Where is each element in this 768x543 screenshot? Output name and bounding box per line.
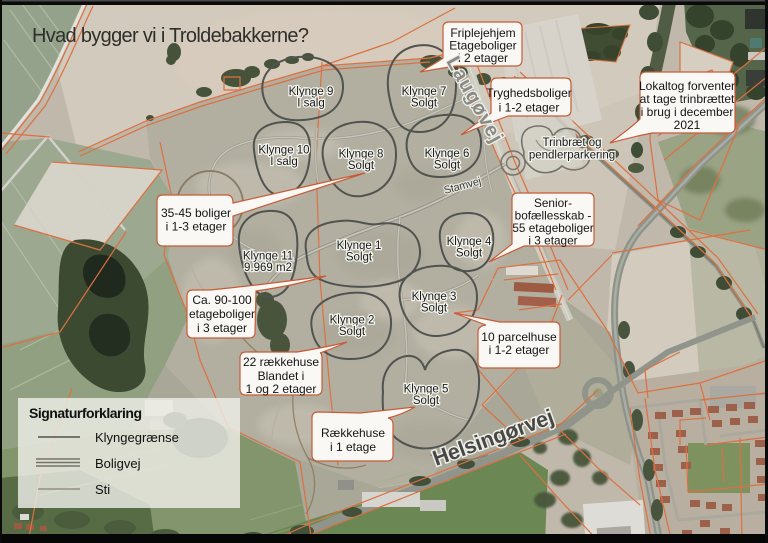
svg-text:Rækkehuse: Rækkehuse	[321, 426, 385, 440]
svg-text:Solgt: Solgt	[346, 252, 373, 264]
svg-text:Klynge 10: Klynge 10	[258, 145, 309, 157]
svg-text:Trinbræt og: Trinbræt og	[542, 137, 601, 149]
svg-text:Solgt: Solgt	[413, 395, 440, 407]
svg-text:Hvad bygger vi i Troldebakkern: Hvad bygger vi i Troldebakkerne?	[32, 25, 309, 47]
svg-text:Lokaltog forventer: Lokaltog forventer	[639, 79, 735, 93]
svg-text:Tryghedsboliger: Tryghedsboliger	[486, 86, 572, 100]
svg-text:Solgt: Solgt	[421, 303, 448, 315]
svg-text:9.969 m2: 9.969 m2	[244, 262, 292, 274]
svg-text:Solgt: Solgt	[348, 160, 375, 172]
svg-text:i 3 etager: i 3 etager	[528, 234, 577, 248]
svg-text:I salg: I salg	[297, 98, 325, 110]
svg-text:10 parcelhuse: 10 parcelhuse	[481, 330, 557, 344]
svg-text:2021: 2021	[674, 118, 701, 132]
svg-text:Blandet i: Blandet i	[258, 369, 305, 383]
svg-text:Solgt: Solgt	[339, 326, 366, 338]
svg-text:at tage trinbrættet: at tage trinbrættet	[640, 92, 735, 106]
svg-text:22 rækkehuse: 22 rækkehuse	[243, 355, 319, 369]
svg-text:pendlerparkering: pendlerparkering	[529, 150, 615, 162]
svg-text:Klynge 11: Klynge 11	[243, 251, 293, 263]
svg-text:Boligvej: Boligvej	[95, 456, 141, 471]
svg-text:Klynge 5: Klynge 5	[404, 384, 449, 396]
svg-text:etageboliger: etageboliger	[189, 307, 255, 321]
svg-text:Signaturforklaring: Signaturforklaring	[29, 405, 142, 421]
svg-text:Klynge 1: Klynge 1	[337, 240, 382, 252]
svg-text:i brug i december: i brug i december	[641, 105, 734, 119]
svg-text:I salg: I salg	[270, 156, 298, 168]
svg-text:i 3 etager: i 3 etager	[197, 321, 247, 335]
svg-text:i 1-3 etager: i 1-3 etager	[166, 220, 227, 234]
svg-text:Solgt: Solgt	[434, 160, 461, 172]
svg-text:Solgt: Solgt	[456, 248, 483, 260]
svg-text:1 og 2 etager: 1 og 2 etager	[246, 382, 317, 396]
svg-text:Klynge 7: Klynge 7	[402, 86, 447, 98]
svg-text:Klyngegrænse: Klyngegrænse	[95, 430, 179, 445]
svg-text:i 1-2 etager: i 1-2 etager	[489, 343, 550, 357]
svg-text:Klynge 4: Klynge 4	[447, 236, 492, 248]
svg-text:Klynge 9: Klynge 9	[289, 86, 334, 98]
svg-text:i 1 etage: i 1 etage	[330, 440, 376, 454]
svg-text:Sti: Sti	[95, 482, 110, 497]
svg-text:Klynge 3: Klynge 3	[412, 291, 457, 303]
svg-text:Klynge 8: Klynge 8	[339, 149, 384, 161]
svg-text:35-45 boliger: 35-45 boliger	[161, 206, 231, 220]
svg-text:i 1-2 etager: i 1-2 etager	[499, 101, 560, 115]
svg-text:Solgt: Solgt	[411, 98, 438, 110]
svg-text:Klynge 2: Klynge 2	[330, 315, 375, 327]
svg-text:Ca. 90-100: Ca. 90-100	[192, 293, 252, 307]
svg-text:Klynge 6: Klynge 6	[425, 148, 470, 160]
